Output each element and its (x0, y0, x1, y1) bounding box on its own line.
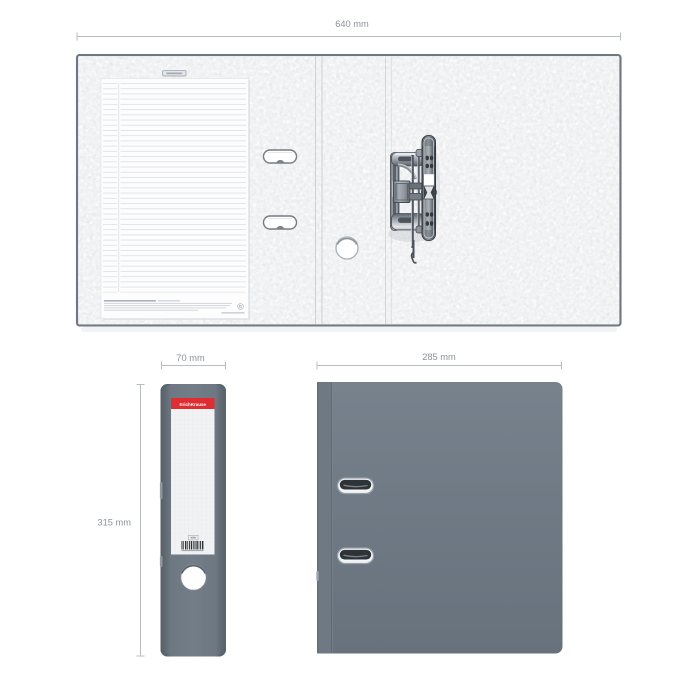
svg-text:315 mm: 315 mm (97, 518, 131, 528)
svg-text:ErichKrause: ErichKrause (179, 402, 206, 407)
svg-text:70 mm: 70 mm (176, 353, 205, 363)
svg-text:640 mm: 640 mm (335, 19, 369, 29)
svg-text:285 mm: 285 mm (422, 352, 456, 362)
